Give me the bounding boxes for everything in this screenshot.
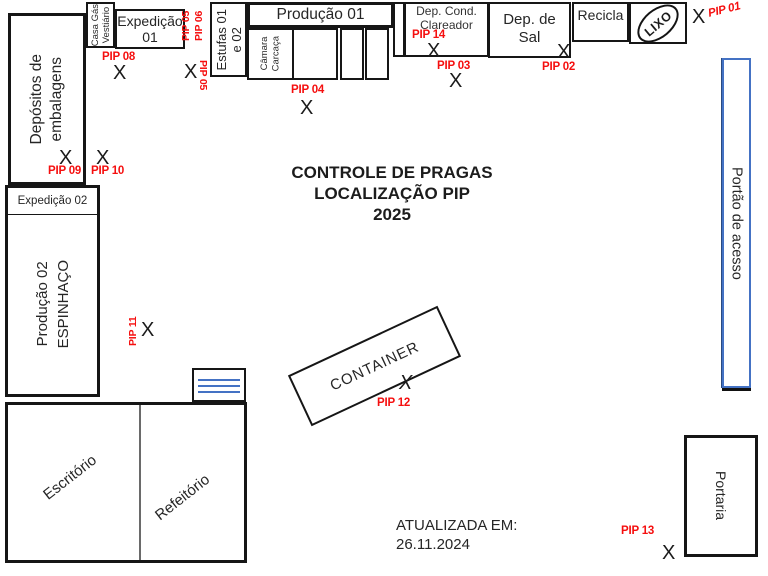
room-portaria: Portaria: [684, 435, 758, 557]
room-casa-gas-vestiario: Casa Gás Vestiário: [86, 2, 115, 48]
room-estufas: Estufas 01 e 02: [210, 2, 247, 77]
stair-line: [198, 379, 240, 381]
room-label: Estufas 01: [214, 9, 229, 70]
room-label: Recicla: [578, 4, 624, 23]
expedicao-02-header: Expedição 02: [8, 188, 97, 215]
pip-04-label: PIP 04: [291, 84, 324, 97]
room-label: Expedição 02: [18, 195, 88, 207]
pip-10-label: PIP 10: [91, 165, 124, 178]
stair-line: [198, 391, 240, 393]
room-label: Dep. de: [503, 11, 556, 29]
room-label: Casa Gás: [90, 4, 101, 46]
pip-12-label: PIP 12: [377, 397, 410, 410]
room-label: e 02: [229, 9, 244, 70]
pip-05-marker-label: PIP 05: [197, 56, 208, 94]
lixo-ellipse: LIXO: [630, 0, 685, 50]
room-lixo: LIXO: [629, 2, 687, 44]
room-label: Expedição: [117, 13, 182, 29]
room-label: embalagens: [47, 54, 67, 144]
pip-13-marker: X: [662, 543, 675, 563]
room-expedicao-01: Expedição 01: [115, 9, 185, 49]
small-room-2: [365, 28, 389, 80]
room-divider: [139, 405, 141, 560]
gate-portao-de-acesso: Portão de acesso: [722, 58, 751, 388]
title-line-1: CONTROLE DE PRAGAS: [282, 162, 502, 183]
pip-04-marker: X: [300, 98, 313, 118]
stairs-box: [192, 368, 246, 402]
pip-11-label: PIP 11: [128, 311, 139, 351]
stair-line: [198, 385, 240, 387]
title-line-2: LOCALIZAÇÃO PIP: [282, 183, 502, 204]
floor-plan: Depósitos de embalagens Casa Gás Vestiár…: [0, 0, 768, 576]
room-label: Produção 02: [32, 260, 53, 348]
pip-05-marker: X: [184, 62, 197, 82]
room-label: Câmara: [259, 36, 271, 71]
pip-02-label: PIP 02: [542, 61, 575, 74]
room-depositos-embalagens: Depósitos de embalagens: [8, 13, 86, 185]
room-label-escritorio: Escritório: [25, 440, 114, 515]
room-label: Dep. Cond.: [416, 5, 477, 19]
room-camara-carcaca: Câmara Carcaça: [247, 28, 338, 80]
room-label: ESPINHAÇO: [53, 260, 74, 348]
camara-cell: Câmara Carcaça: [249, 30, 294, 78]
room-label-refeitorio: Refeitório: [136, 458, 229, 536]
pip-01-marker: X: [692, 7, 705, 27]
pip-02-marker: X: [557, 42, 570, 62]
room-producao-01: Produção 01: [247, 2, 394, 28]
room-producao-02: Expedição 02 Produção 02 ESPINHAÇO: [5, 185, 100, 397]
pip-14-marker: X: [427, 41, 440, 61]
room-label: Portão de acesso: [729, 167, 745, 280]
title-line-3: 2025: [282, 204, 502, 225]
pip-13-label: PIP 13: [621, 525, 654, 538]
updated-label: ATUALIZADA EM:: [396, 516, 517, 535]
room-label: 01: [117, 29, 182, 45]
updated-date: 26.11.2024: [396, 535, 517, 554]
room-label: Vestiário: [101, 4, 112, 46]
pip-05-label: PIP 05: [181, 5, 192, 47]
room-recicla: Recicla: [572, 2, 629, 42]
pip-09-label: PIP 09: [48, 165, 81, 178]
pip-03-marker: X: [449, 71, 462, 91]
pip-08-marker: X: [113, 63, 126, 83]
room-escritorio-refeitorio: Escritório Refeitório: [5, 402, 247, 563]
room-label: Sal: [503, 29, 556, 47]
room-label: LIXO: [642, 8, 675, 39]
pip-11-marker: X: [141, 320, 154, 340]
pip-01-label: PIP 01: [707, 0, 742, 20]
room-label: Carcaça: [271, 36, 283, 71]
pip-12-marker: X: [399, 373, 412, 393]
small-room-1: [340, 28, 364, 80]
map-title: CONTROLE DE PRAGAS LOCALIZAÇÃO PIP 2025: [282, 162, 502, 225]
room-label: Depósitos de: [27, 54, 47, 144]
pip-06-label: PIP 06: [194, 5, 205, 47]
room-container: CONTAINER: [288, 306, 461, 426]
room-label: Produção 01: [277, 6, 365, 24]
updated-at: ATUALIZADA EM: 26.11.2024: [396, 516, 517, 554]
room-label: Portaria: [713, 471, 729, 520]
